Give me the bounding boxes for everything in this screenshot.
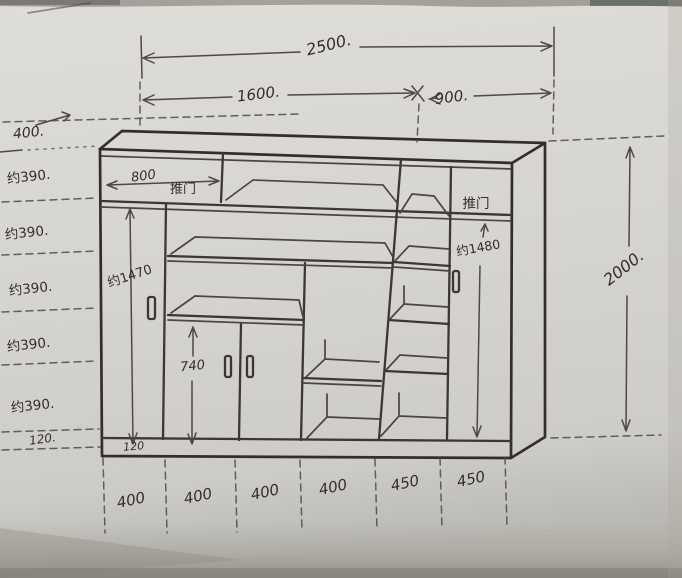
cabinet-sketch-photo: 2500. 1600. 900. 2000. 400. 约390. 约390. … (0, 0, 682, 578)
sketch-canvas: 2500. 1600. 900. 2000. 400. 约390. 约390. … (0, 0, 682, 578)
photo-top-left-edge (0, 0, 120, 5)
plinth-height-label: 120 (123, 439, 145, 454)
photo-bottom-edge (0, 568, 682, 578)
photo-right-edge (668, 0, 682, 578)
row-height-label-1: 400. (12, 123, 45, 142)
sliding-door-label-left: 推门 (170, 182, 196, 197)
sliding-door-label-right: 推门 (463, 196, 490, 212)
lower-door-height-label: 740 (180, 358, 206, 376)
